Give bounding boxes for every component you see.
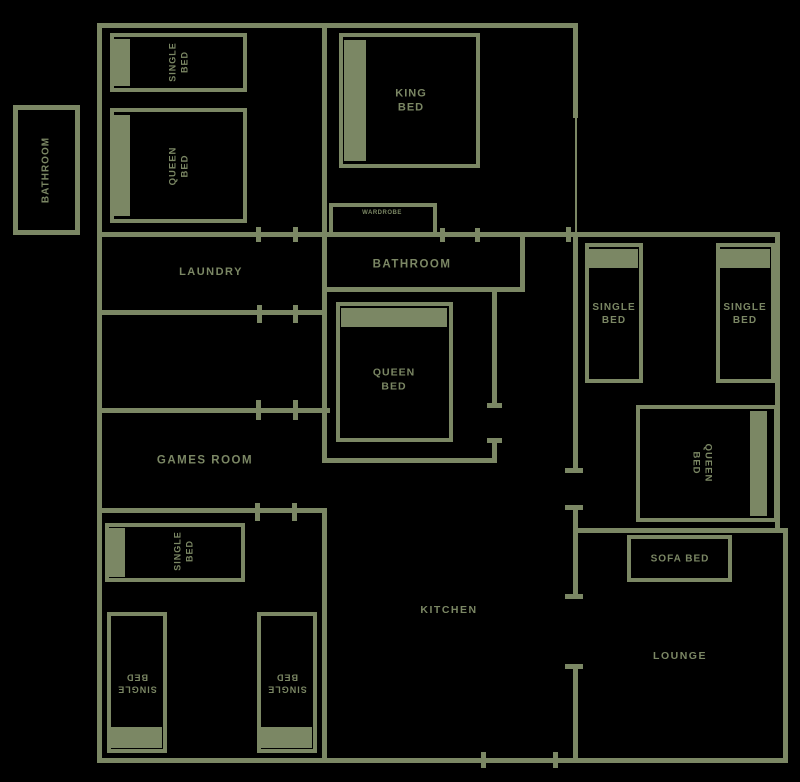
door-tick [256,400,261,420]
wall-bedroom-divider-top [322,23,327,237]
king-bed-label: KING BED [395,87,427,116]
room-label-kitchen: KITCHEN [420,604,477,618]
door-tick [293,227,298,242]
single-bed-sw-pillow [109,528,125,577]
single-bed-nw-pillow [114,39,130,86]
queen-bed-middle-pillow [341,308,447,327]
wall-kingroom-east-window [575,118,577,232]
wall-top [97,23,578,28]
single-bed-south-2-label: SINGLE BED [267,671,307,694]
single-bed-east-1-label: SINGLE BED [592,301,635,327]
door-tick [565,594,583,599]
wall-queenroom-bottom [322,458,497,463]
floor-plan: BATHROOM WARDROBE SINGLE BED QUEEN BED K… [0,0,800,782]
single-bed-east-1-pillow [589,249,638,268]
wall-kingroom-east [573,23,578,118]
wall-mid-vertical [322,237,327,463]
wardrobe-label: WARDROBE [362,210,402,218]
room-label-games-room: GAMES ROOM [157,454,253,469]
queen-bed-east-pillow [750,411,767,516]
queen-bed-east-label: QUEEN BED [689,444,714,483]
door-tick [292,503,297,521]
queen-bed-nw-pillow [114,115,130,216]
wall-lounge-west [573,666,578,763]
wall-eastbedroom-west-b [573,510,578,597]
wall-eastbedroom-bottom [573,528,788,533]
room-label-lounge: LOUNGE [653,650,707,664]
door-tick [293,305,298,323]
wall-eastbedroom-west-a [573,234,578,470]
door-tick [487,438,502,443]
door-tick [553,752,558,768]
wall-bottom [97,758,788,763]
wall-queenroom-east-a [492,292,497,403]
queen-bed-nw-label: QUEEN BED [168,147,193,186]
wall-bathroom-east [520,237,525,292]
sofa-bed-label: SOFA BED [651,553,710,566]
door-tick [293,400,298,420]
door-tick [475,228,480,242]
room-label-bathroom-main: BATHROOM [373,258,452,273]
door-tick [566,227,571,242]
wall-kitchen-west [322,508,327,763]
single-bed-south-1-pillow [111,727,162,748]
wall-left [97,23,102,763]
door-tick [255,503,260,521]
single-bed-south-2-pillow [261,727,312,748]
door-tick [565,468,583,473]
door-tick [440,228,445,242]
wall-lounge-east [783,528,788,763]
single-bed-sw-label: SINGLE BED [172,531,195,571]
king-bed-pillow [344,40,366,161]
door-tick [257,305,262,323]
door-tick [256,227,261,242]
door-tick [565,664,583,669]
wardrobe [329,203,437,237]
single-bed-nw-label: SINGLE BED [167,42,190,82]
room-label-laundry: LAUNDRY [179,265,243,279]
room-label-bathroom-outside: BATHROOM [40,137,53,203]
door-tick [565,505,583,510]
door-tick [481,752,486,768]
single-bed-south-1-label: SINGLE BED [117,671,157,694]
queen-bed-middle-label: QUEEN BED [373,366,415,393]
single-bed-east-2-pillow [720,249,770,268]
wall-main-horizontal [97,232,780,237]
door-tick [487,403,502,408]
single-bed-east-2-label: SINGLE BED [723,301,766,327]
